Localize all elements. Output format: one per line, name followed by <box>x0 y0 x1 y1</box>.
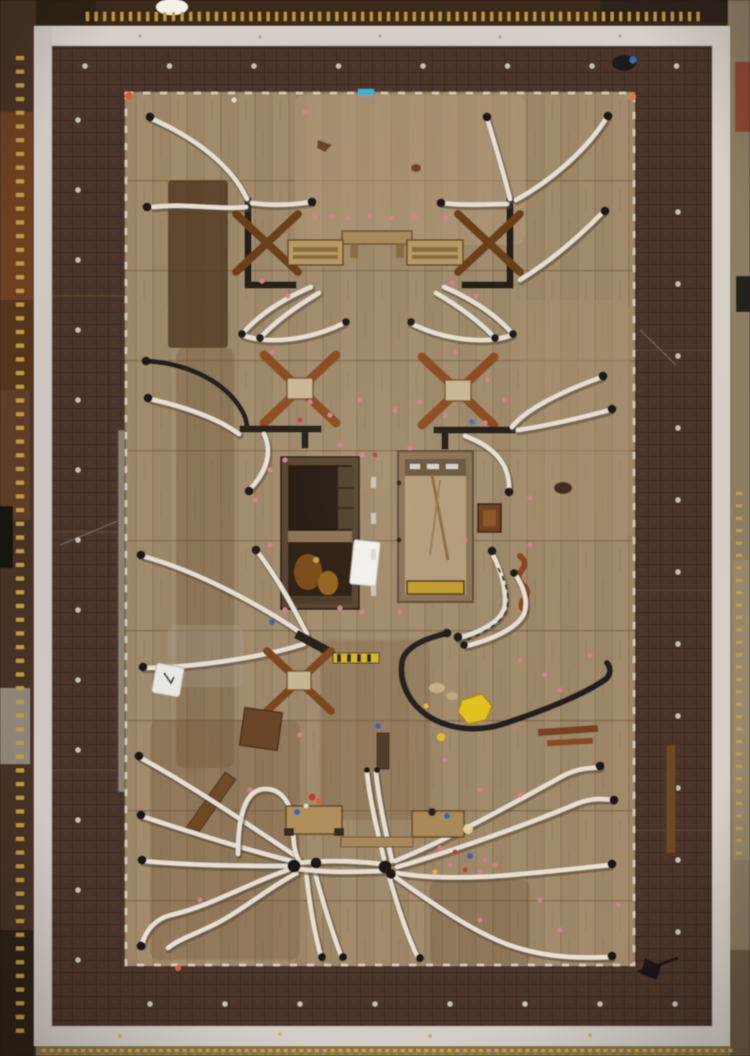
vignette-overlay <box>0 0 750 1056</box>
photo-canvas <box>0 0 750 1056</box>
aerial-construction-photo <box>0 0 750 1056</box>
